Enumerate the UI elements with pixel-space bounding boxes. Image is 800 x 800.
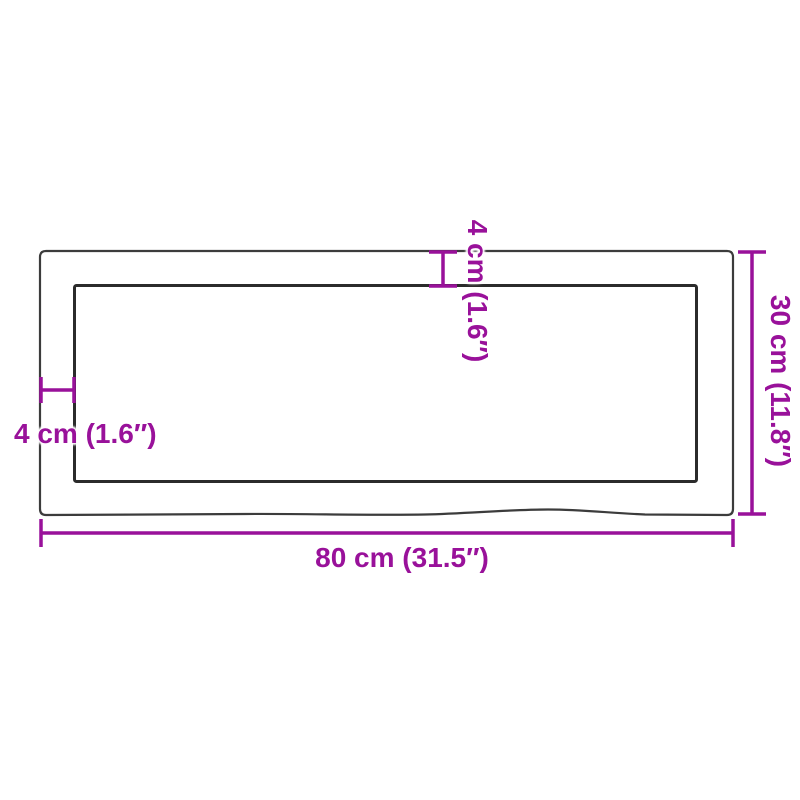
product-dimension-diagram: 80 cm (31.5″) 30 cm (11.8″) 4 cm (1.6″) … [0, 0, 800, 800]
surface-inner-outline [75, 286, 697, 482]
height-dimension-label: 30 cm (11.8″) [766, 295, 794, 467]
slab-outer-outline [40, 251, 733, 515]
left-edge-dimension-line [41, 377, 74, 403]
top-edge-dimension-label: 4 cm (1.6″) [463, 220, 491, 363]
width-dimension-label: 80 cm (31.5″) [315, 544, 489, 572]
left-edge-dimension-label: 4 cm (1.6″) [14, 420, 157, 448]
top-edge-dimension-line [429, 252, 457, 286]
diagram-canvas [0, 0, 800, 800]
height-dimension-line [738, 252, 766, 514]
